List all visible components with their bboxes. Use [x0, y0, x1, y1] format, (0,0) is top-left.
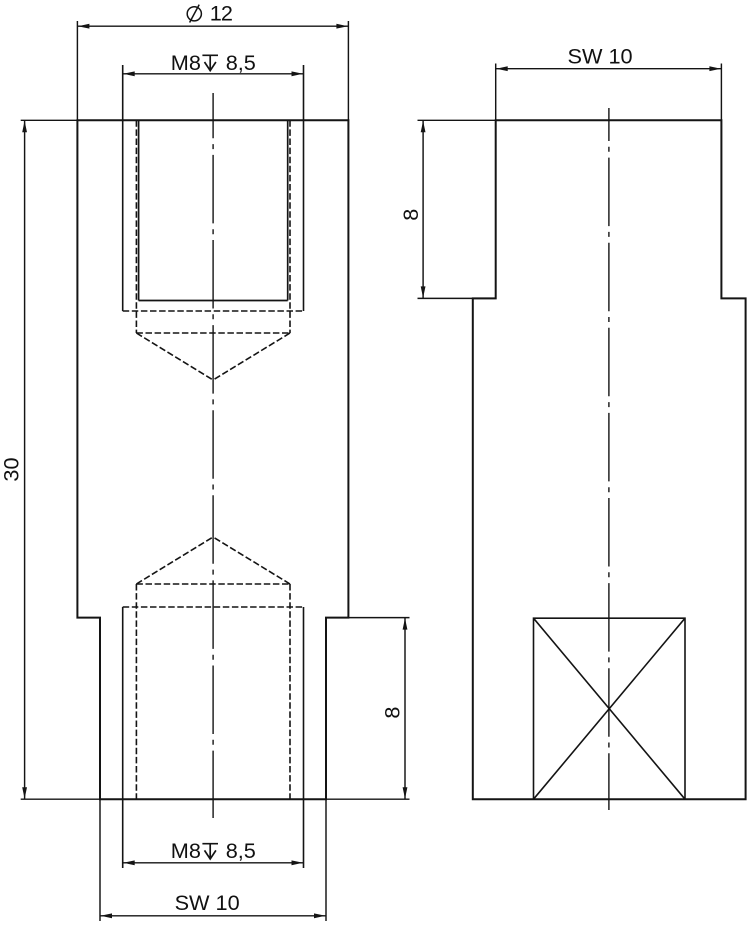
svg-text:8: 8 — [379, 707, 404, 719]
svg-text:8: 8 — [398, 209, 423, 221]
svg-text:30: 30 — [0, 457, 24, 481]
svg-text:M8: M8 — [171, 838, 201, 863]
svg-text:8,5: 8,5 — [226, 838, 256, 863]
svg-text:M8: M8 — [171, 50, 201, 75]
svg-text:12: 12 — [210, 0, 232, 25]
svg-text:SW 10: SW 10 — [568, 43, 633, 68]
svg-text:8,5: 8,5 — [226, 50, 256, 75]
svg-text:SW 10: SW 10 — [175, 890, 240, 915]
